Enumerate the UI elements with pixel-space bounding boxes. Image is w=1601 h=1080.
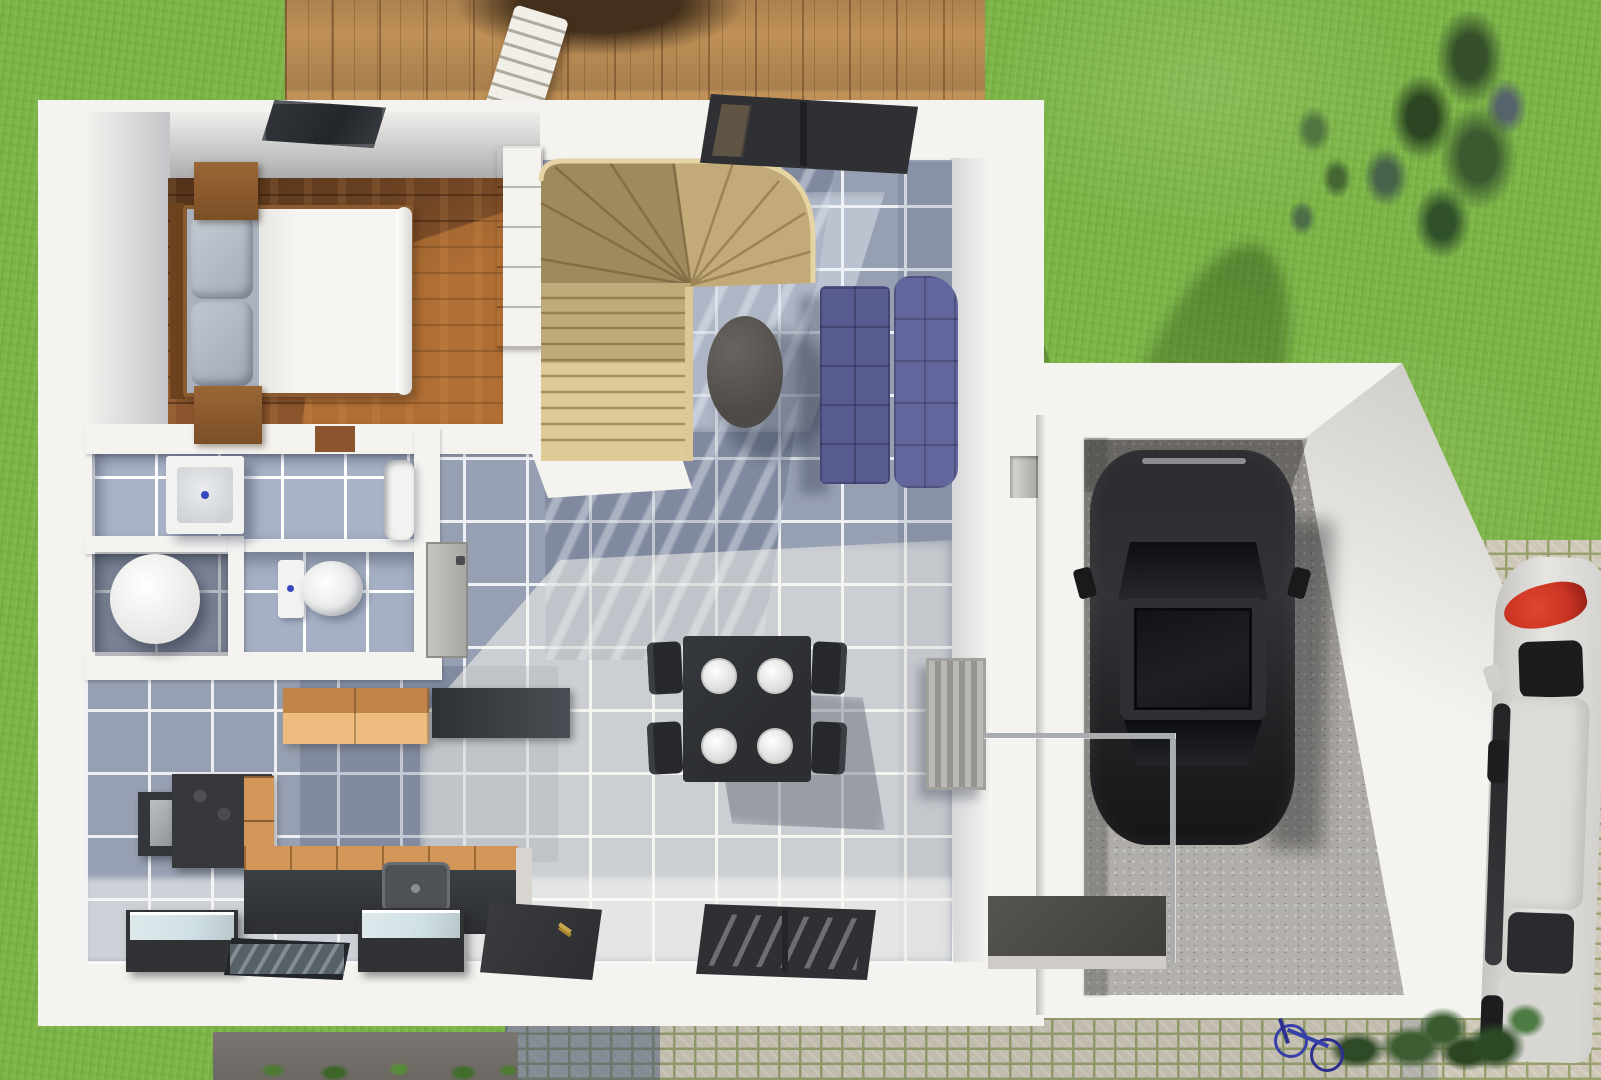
dining-table xyxy=(683,636,811,782)
nightstand-bottom xyxy=(194,386,262,444)
wall-bedroom-bottom xyxy=(85,424,543,454)
toilet-bowl xyxy=(301,561,363,616)
bathroom-floor xyxy=(92,450,418,542)
bedroom-doorway xyxy=(315,426,355,452)
tree-twigs xyxy=(1262,90,1377,250)
patio-window-glass xyxy=(712,104,906,164)
dining-chair-2 xyxy=(647,721,684,775)
black-car-windshield xyxy=(1118,542,1268,600)
stair-handrail xyxy=(685,287,693,461)
orange-wall-cabinet xyxy=(283,688,429,744)
wall-wc-divider xyxy=(228,536,244,658)
wall-niche xyxy=(1010,456,1038,498)
white-car-rear-window xyxy=(1518,640,1584,698)
kitchen-counter-top xyxy=(244,846,518,870)
plate-1 xyxy=(701,658,737,694)
walkway-plants xyxy=(245,1056,525,1080)
dark-wall-cabinet xyxy=(432,688,570,738)
glass-top-box-left-glass xyxy=(130,912,234,940)
nightstand-top xyxy=(194,162,258,220)
plate-3 xyxy=(701,728,737,764)
facade-window-mullion xyxy=(782,910,788,972)
front-door xyxy=(480,902,602,980)
floor-glass-panel xyxy=(224,938,350,980)
washing-machine xyxy=(110,554,200,644)
white-car-wheel-rear xyxy=(1487,739,1509,784)
glass-railing-top xyxy=(984,733,1176,738)
porch-step xyxy=(988,956,1166,969)
dining-chair-3 xyxy=(811,641,848,695)
black-car-rear-window xyxy=(1124,720,1262,766)
bed-pillow-2 xyxy=(191,302,253,386)
round-coffee-table xyxy=(707,316,783,428)
patio-window-mullion xyxy=(800,102,807,167)
shrub-2 xyxy=(1398,995,1548,1080)
skylight-window xyxy=(262,100,386,148)
floor-plan-render xyxy=(0,0,1601,1080)
bed-pillow-1 xyxy=(191,215,253,299)
orange-wall-cabinet-divider xyxy=(354,688,356,744)
white-car-roof xyxy=(1503,696,1590,911)
interior-door-handle xyxy=(456,556,465,565)
black-car-sunroof xyxy=(1134,608,1252,710)
sofa-seat xyxy=(820,286,890,484)
kitchen-faucet xyxy=(411,884,420,893)
white-car-front-glass xyxy=(1506,912,1574,974)
bathtub xyxy=(384,460,414,540)
plate-2 xyxy=(757,658,793,694)
glass-top-box-right-glass xyxy=(362,910,460,938)
sofa-back xyxy=(894,276,958,488)
glass-railing-side xyxy=(1170,733,1175,963)
wall-kitchen-top xyxy=(85,652,442,680)
dining-chair-4 xyxy=(811,721,848,775)
black-car xyxy=(1090,450,1295,845)
porch-platform xyxy=(988,896,1166,958)
bed-duvet xyxy=(259,209,399,393)
bedroom-wall-face-left xyxy=(88,112,170,432)
toilet-button xyxy=(287,585,294,592)
black-car-front-trim xyxy=(1142,458,1246,464)
bed-footboard-roll xyxy=(396,207,412,395)
dining-chair-1 xyxy=(647,641,684,695)
radiator xyxy=(926,658,986,790)
living-wall-face-right xyxy=(950,158,992,962)
plate-4 xyxy=(757,728,793,764)
bicycle xyxy=(1272,990,1352,1080)
washbasin-drain xyxy=(201,491,209,499)
